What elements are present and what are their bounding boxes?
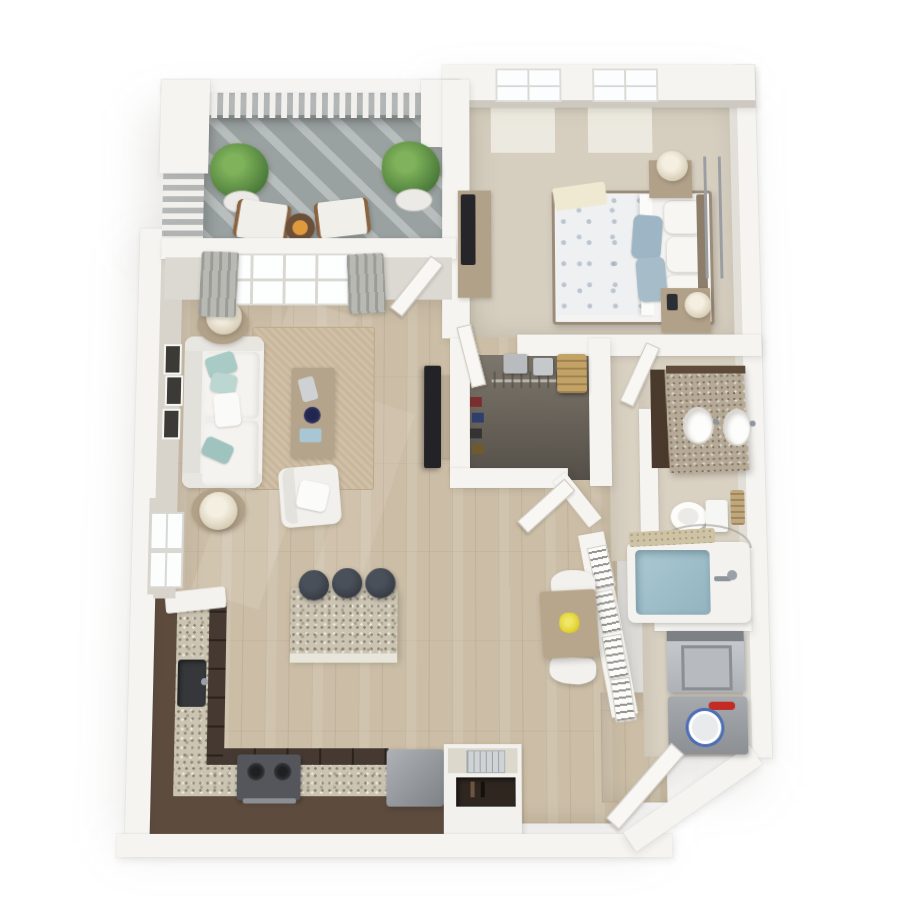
closet-bench xyxy=(557,354,587,393)
sofa-back xyxy=(182,336,203,487)
dryer-button-strip xyxy=(709,702,736,710)
lounge-chair xyxy=(313,197,372,239)
plant-pot xyxy=(395,189,432,212)
floor-plan xyxy=(0,20,900,900)
window-light-patch xyxy=(588,102,653,153)
niche-bottle xyxy=(470,782,474,798)
floor-plan-image xyxy=(0,0,900,900)
wall-closet-right xyxy=(588,338,612,486)
coffee-table-bowl xyxy=(304,407,321,424)
bedroom-wall-rail xyxy=(703,157,723,279)
refrigerator xyxy=(386,749,444,806)
vanity-sink xyxy=(683,407,715,444)
window-light-patch xyxy=(491,102,555,153)
flower-centerpiece xyxy=(559,613,579,633)
coffee-table-tray xyxy=(299,429,321,443)
wall-frame xyxy=(163,344,182,374)
toilet-seat xyxy=(678,508,699,525)
island-side-panel xyxy=(290,653,398,662)
dryer-dial xyxy=(688,711,721,744)
niche-bottle xyxy=(481,782,485,798)
living-tv xyxy=(424,366,441,468)
wall-frame xyxy=(165,375,184,405)
vanity-sink xyxy=(722,409,752,446)
closet-shoe xyxy=(472,413,484,423)
armchair-pillow xyxy=(295,479,330,513)
balcony-column-left xyxy=(159,80,210,174)
bathtub-water xyxy=(635,550,711,615)
wall-bedroom-bottom xyxy=(517,335,762,356)
sofa-throw xyxy=(213,392,242,428)
balcony-railing-left xyxy=(162,172,205,242)
oven-handle xyxy=(243,798,296,803)
kitchen-island xyxy=(290,588,398,659)
vanity-trim xyxy=(666,366,745,374)
table-lamp xyxy=(684,292,711,318)
table-lamp xyxy=(656,151,688,181)
bedroom-tv xyxy=(461,194,476,265)
vanity-faucet xyxy=(713,419,719,425)
closet-storage-box xyxy=(533,358,553,376)
living-side-window xyxy=(148,512,184,588)
built-in-sink xyxy=(466,750,505,773)
bed-floral-duvet xyxy=(556,194,642,315)
bedroom-window xyxy=(592,69,658,103)
closet-shoe xyxy=(470,429,482,439)
vanity-faucet xyxy=(750,421,756,427)
curtain xyxy=(198,251,239,318)
closet-shoe xyxy=(470,397,482,407)
bed-pillow-blue xyxy=(631,214,664,260)
bar-stool xyxy=(365,568,395,598)
range xyxy=(237,754,301,800)
wall-closet-bottom xyxy=(450,468,568,488)
washer-top-panel xyxy=(667,631,744,641)
range-burner xyxy=(274,763,292,781)
towel-basket xyxy=(730,490,745,525)
bathtub-faucet-knob xyxy=(727,570,737,580)
lounge-chair xyxy=(232,198,292,243)
nightstand-phone xyxy=(667,294,678,310)
bar-stool xyxy=(299,570,330,600)
bar-stool xyxy=(332,568,363,598)
built-in-niche xyxy=(456,777,516,806)
bedroom-window xyxy=(495,69,561,103)
closet-shoe xyxy=(472,444,484,454)
wall-frame xyxy=(162,409,181,440)
wall-bottom xyxy=(116,834,672,857)
closet-storage-box xyxy=(503,354,527,374)
curtain xyxy=(346,253,386,315)
washer-door xyxy=(681,645,733,690)
balcony-railing-top xyxy=(211,93,421,118)
